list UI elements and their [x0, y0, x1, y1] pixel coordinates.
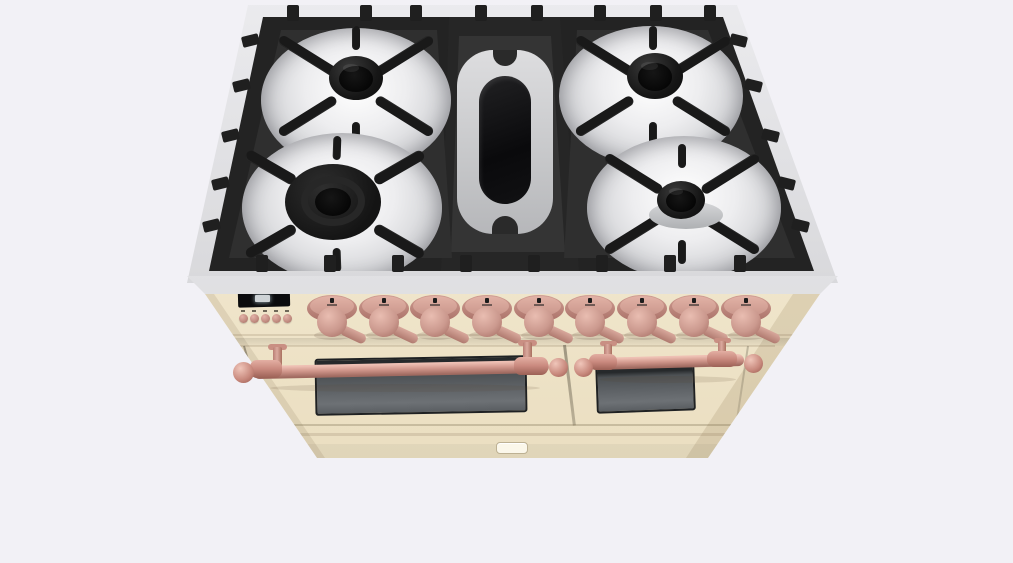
- left-rail-endcap: [514, 357, 548, 375]
- right-rail-ball-finial: [574, 358, 593, 377]
- oven-handles: [0, 0, 1013, 563]
- left-rail-endcap: [250, 360, 282, 378]
- left-rail-ball-finial: [549, 358, 568, 377]
- left-rail-ball-finial: [233, 362, 254, 383]
- right-rail-endcap: [707, 351, 737, 367]
- left-oven-rail: [253, 360, 549, 379]
- right-rail-ball-finial: [744, 354, 763, 373]
- right-rail-endcap: [589, 354, 617, 370]
- product-render-stage: [0, 0, 1013, 563]
